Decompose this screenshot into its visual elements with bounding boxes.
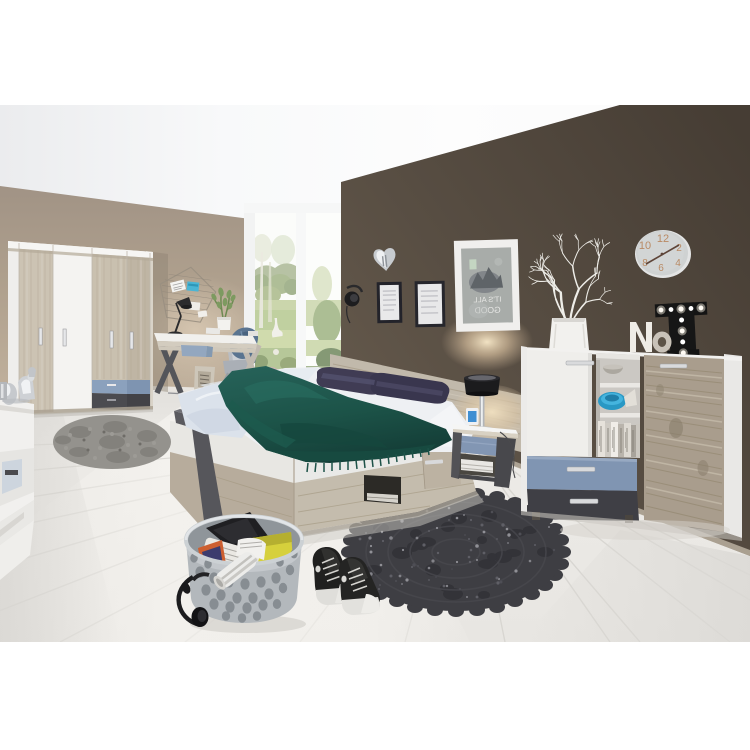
svg-text:10: 10 (639, 240, 651, 252)
svg-text:12: 12 (657, 233, 669, 245)
svg-text:6: 6 (658, 263, 664, 274)
svg-text:2: 2 (676, 243, 682, 254)
svg-text:4: 4 (675, 258, 681, 269)
